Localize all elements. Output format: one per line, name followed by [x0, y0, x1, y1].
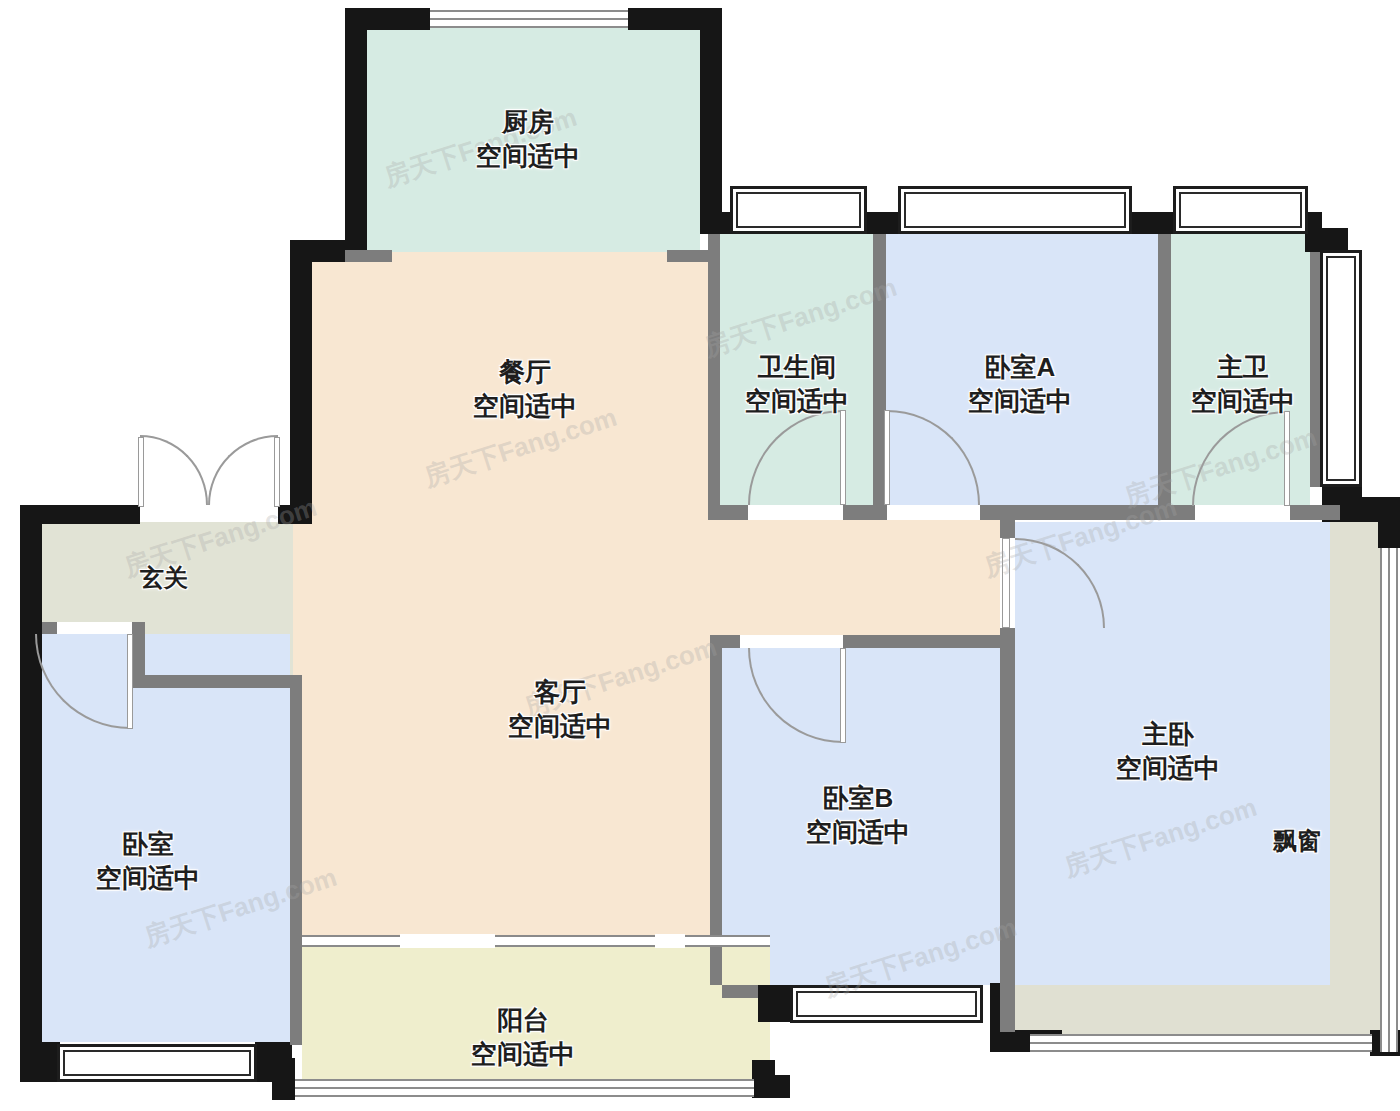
entry-door-left-arc	[140, 435, 208, 505]
inner-wall	[1290, 505, 1340, 520]
inner-wall	[1000, 520, 1015, 538]
bedroom-a-status: 空间适中	[968, 385, 1072, 419]
master-bath-window	[1173, 186, 1308, 234]
master-bedroom-door-leaf	[1002, 538, 1010, 628]
floor-plan: 房天下Fang.com 房天下Fang.com 房天下Fang.com 房天下F…	[0, 0, 1400, 1111]
wall-segment	[272, 1058, 295, 1100]
wall-segment	[752, 1075, 790, 1098]
wall-segment	[290, 240, 312, 522]
entry-door-right-leaf	[274, 437, 280, 507]
wall-segment	[20, 505, 42, 1082]
foyer-label: 玄关	[140, 562, 188, 593]
sliding-door-opening	[400, 934, 495, 948]
wall-segment	[278, 505, 312, 524]
master-bedroom-label: 主卧 空间适中	[1116, 718, 1220, 786]
bedroom-a-door-leaf	[884, 410, 890, 505]
bedroom-b-name: 卧室B	[806, 782, 910, 816]
bedroom-b-label: 卧室B 空间适中	[806, 782, 910, 850]
living-status: 空间适中	[508, 710, 612, 744]
dining-label: 餐厅 空间适中	[473, 356, 577, 424]
wall-segment	[865, 212, 900, 234]
inner-wall	[710, 635, 722, 985]
master-bath-door-opening	[1195, 505, 1290, 520]
wall-segment	[345, 8, 367, 257]
balcony-status: 空间适中	[471, 1038, 575, 1072]
bathroom-door-leaf	[840, 410, 846, 505]
foyer-name: 玄关	[140, 562, 188, 593]
bedroom-a-door-opening	[887, 505, 980, 520]
bathroom-name: 卫生间	[745, 351, 849, 385]
master-bedroom-name: 主卧	[1116, 718, 1220, 752]
inner-wall	[1158, 234, 1171, 505]
inner-wall	[290, 675, 302, 1045]
bay-window-glazing	[1030, 1034, 1372, 1052]
bathroom-door-opening	[748, 505, 843, 520]
bay-window-floor	[1015, 985, 1380, 1035]
master-bath-status: 空间适中	[1191, 385, 1295, 419]
bedroom-name: 卧室	[96, 828, 200, 862]
master-bath-side-window	[1320, 250, 1362, 487]
kitchen-status: 空间适中	[476, 140, 580, 174]
inner-wall	[843, 505, 887, 520]
balcony-sliding-door	[302, 935, 770, 947]
living-label: 客厅 空间适中	[508, 676, 612, 744]
bedroom-label: 卧室 空间适中	[96, 828, 200, 896]
master-bath-door-leaf	[1284, 411, 1290, 506]
balcony-name: 阳台	[471, 1004, 575, 1038]
balcony-label: 阳台 空间适中	[471, 1004, 575, 1072]
wall-segment	[1322, 228, 1348, 252]
bay-window-label: 飘窗	[1273, 825, 1321, 856]
inner-wall	[843, 635, 1000, 648]
living-name: 客厅	[508, 676, 612, 710]
bay-window-floor	[1330, 522, 1380, 1035]
inner-wall	[1000, 628, 1015, 1032]
bedroom-window	[57, 1044, 257, 1082]
bedroom-a-name: 卧室A	[968, 351, 1072, 385]
wall-segment	[20, 1042, 60, 1082]
inner-wall	[980, 505, 1195, 520]
inner-wall	[722, 985, 758, 998]
inner-wall	[710, 635, 740, 648]
bathroom-window	[730, 186, 867, 234]
dining-status: 空间适中	[473, 390, 577, 424]
sliding-door-opening	[655, 934, 685, 948]
corridor-floor	[710, 520, 1000, 635]
wall-segment	[20, 505, 140, 524]
master-bedroom-status: 空间适中	[1116, 752, 1220, 786]
bedroom-status: 空间适中	[96, 862, 200, 896]
wall-segment	[700, 8, 722, 234]
bathroom-label: 卫生间 空间适中	[745, 351, 849, 419]
inner-wall	[720, 505, 748, 520]
inner-wall	[708, 234, 720, 520]
bedroom-door-opening	[57, 622, 132, 634]
bedroom-a-window	[898, 186, 1132, 234]
inner-wall	[42, 622, 57, 634]
bay-window-name: 飘窗	[1273, 825, 1321, 856]
bathroom-status: 空间适中	[745, 385, 849, 419]
bedroom-door-leaf	[127, 634, 133, 729]
dining-name: 餐厅	[473, 356, 577, 390]
wall-segment	[700, 212, 733, 234]
bedroom-b-door-opening	[740, 635, 843, 648]
kitchen-window	[430, 10, 628, 28]
kitchen-name: 厨房	[476, 106, 580, 140]
kitchen-label: 厨房 空间适中	[476, 106, 580, 174]
bedroom-b-door-leaf	[840, 648, 846, 743]
bay-window-glazing	[1380, 548, 1398, 1052]
bedroom-b-window	[790, 985, 983, 1023]
wall-segment	[1378, 497, 1400, 548]
master-bath-name: 主卫	[1191, 351, 1295, 385]
dining-living-floor	[312, 252, 710, 935]
master-bath-label: 主卫 空间适中	[1191, 351, 1295, 419]
entry-door-left-leaf	[138, 437, 144, 507]
entry-door-right-arc	[208, 435, 278, 505]
wall-segment	[758, 985, 790, 1022]
inner-wall	[132, 675, 302, 688]
bedroom-a-label: 卧室A 空间适中	[968, 351, 1072, 419]
inner-wall	[667, 250, 712, 262]
bedroom-b-status: 空间适中	[806, 816, 910, 850]
balcony-railing-window	[295, 1079, 754, 1097]
inner-wall	[345, 250, 392, 262]
wall-segment	[1128, 212, 1175, 234]
